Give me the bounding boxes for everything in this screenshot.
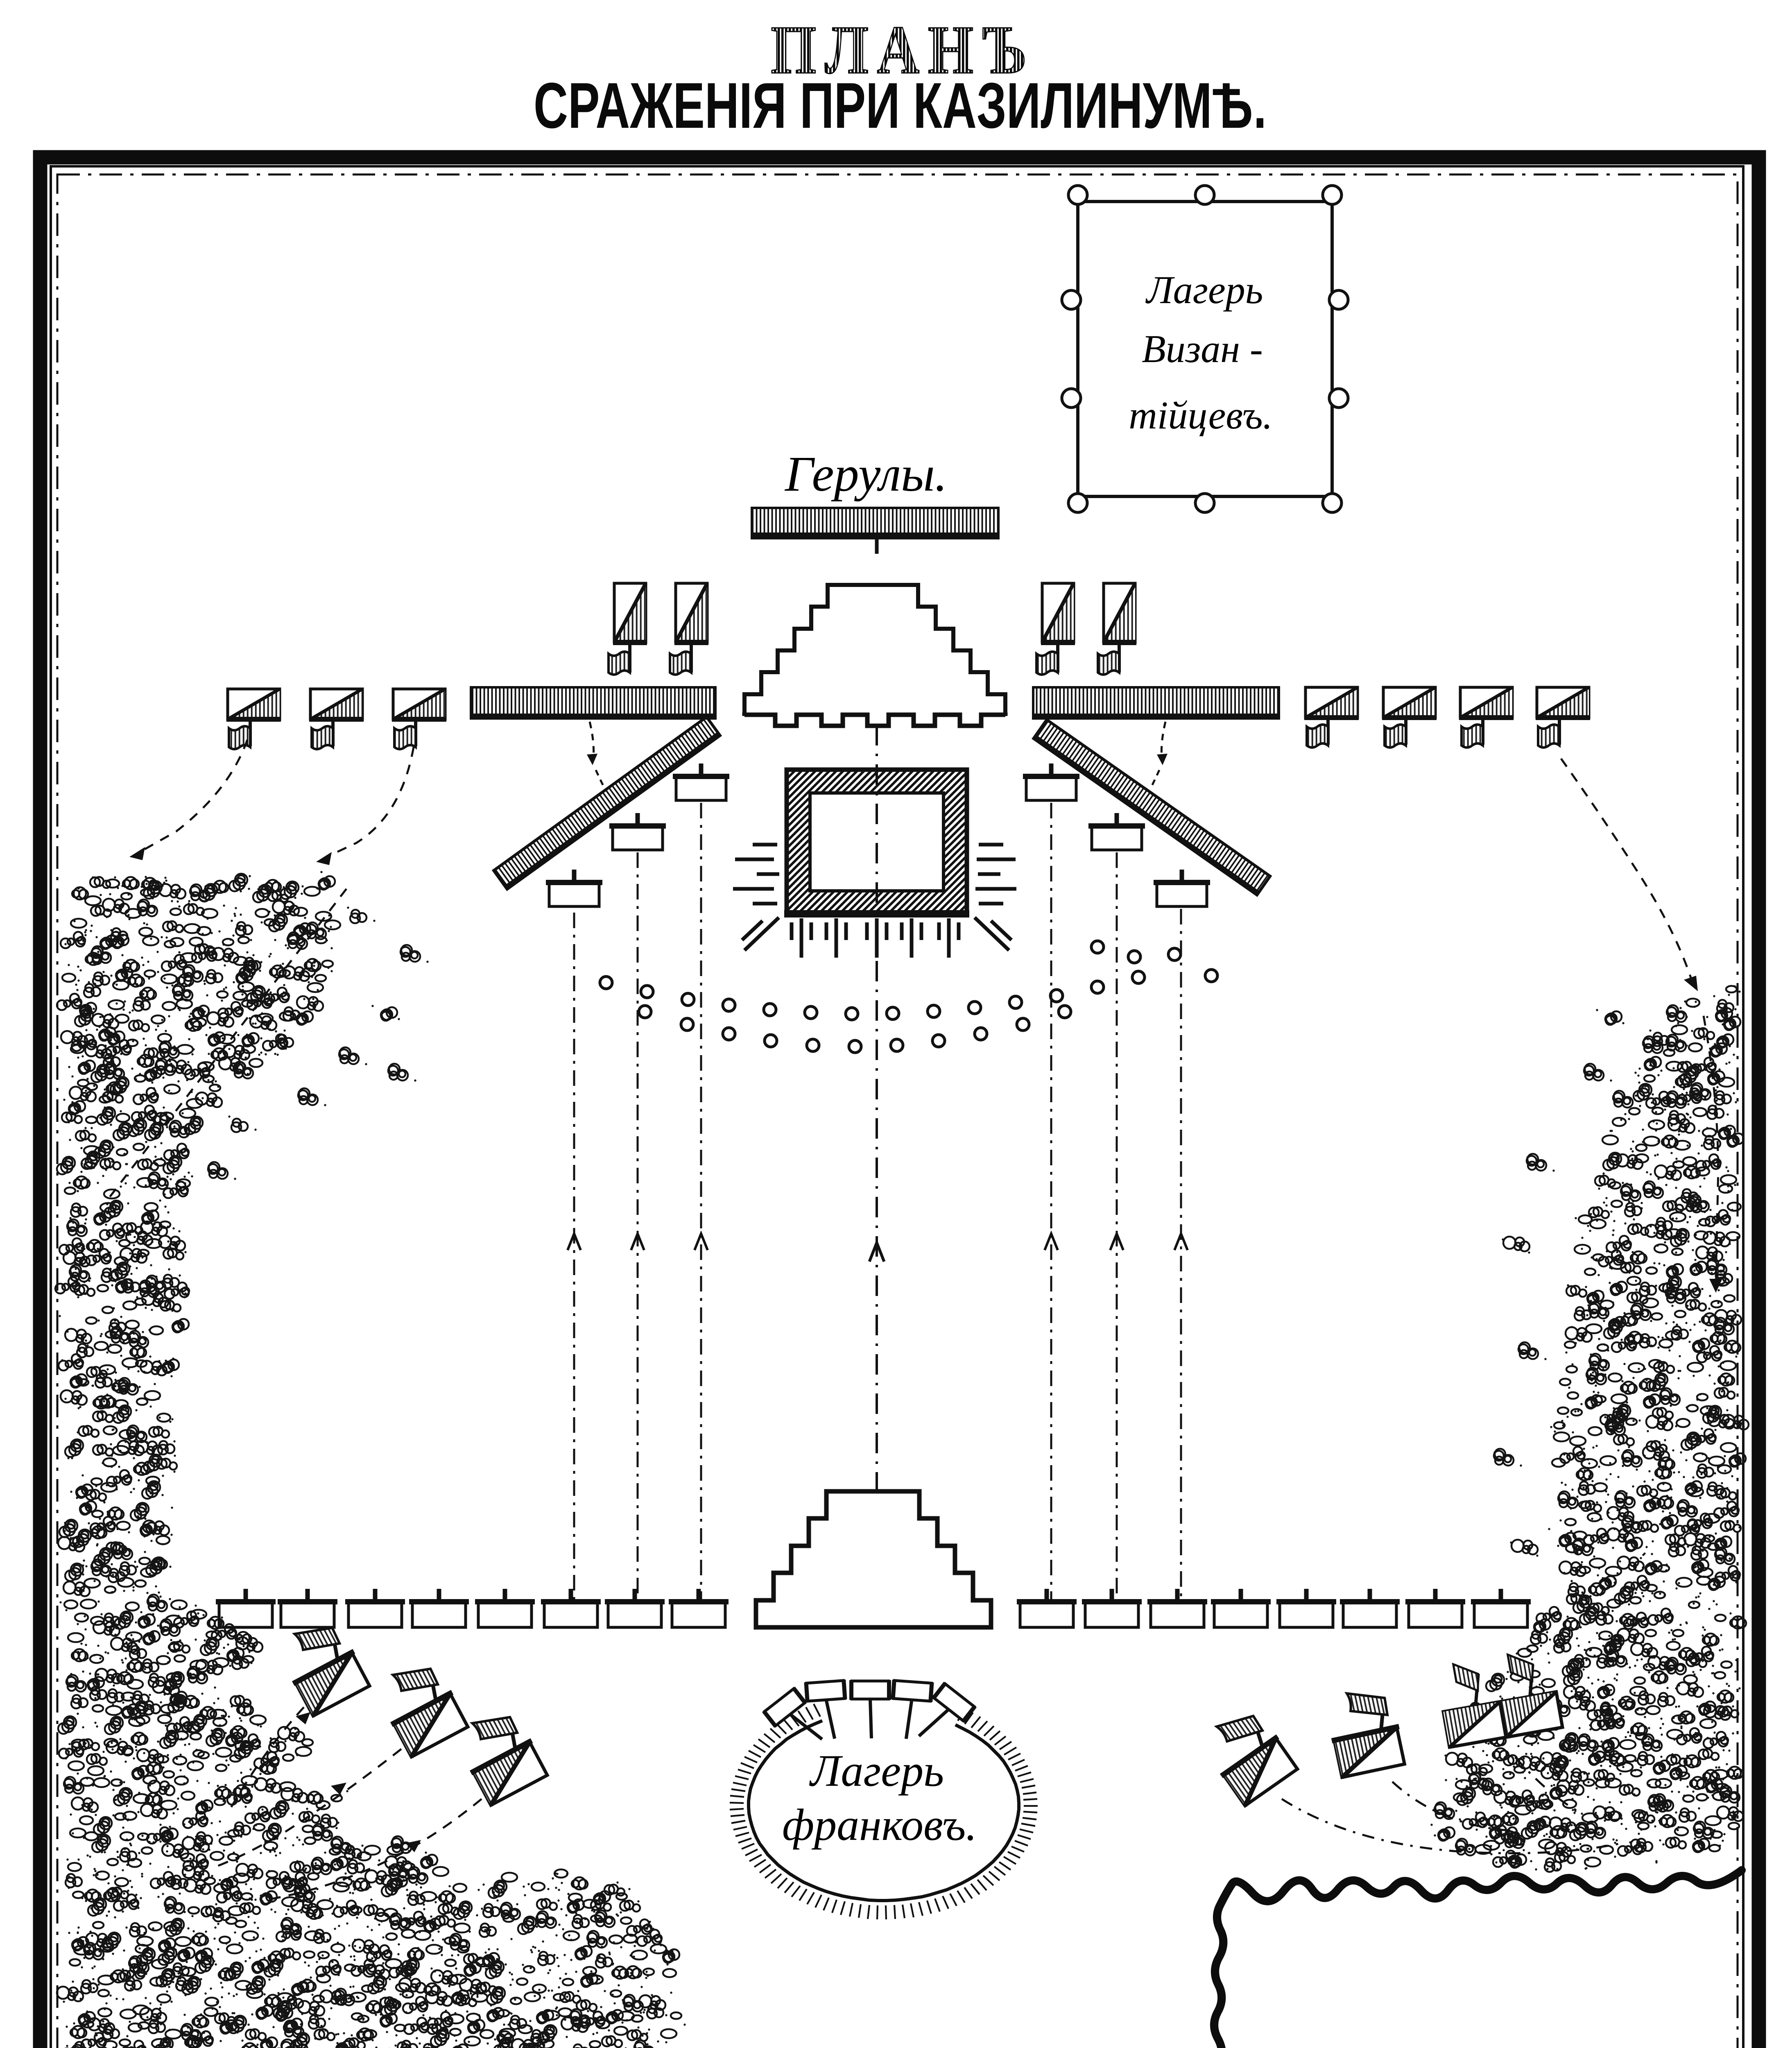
svg-text:франковъ.: франковъ. [782,1800,977,1850]
svg-text:Герулы.: Герулы. [784,446,948,502]
svg-text:тійцевъ.: тійцевъ. [1129,393,1272,437]
svg-text:Лагерь: Лагерь [1145,268,1263,312]
svg-text:СРАЖЕНІЯ ПРИ КАЗИЛИНУМѢ.: СРАЖЕНІЯ ПРИ КАЗИЛИНУМѢ. [534,70,1267,142]
svg-text:Визан -: Визан - [1142,327,1263,371]
svg-text:Лагерь: Лагерь [809,1746,944,1796]
